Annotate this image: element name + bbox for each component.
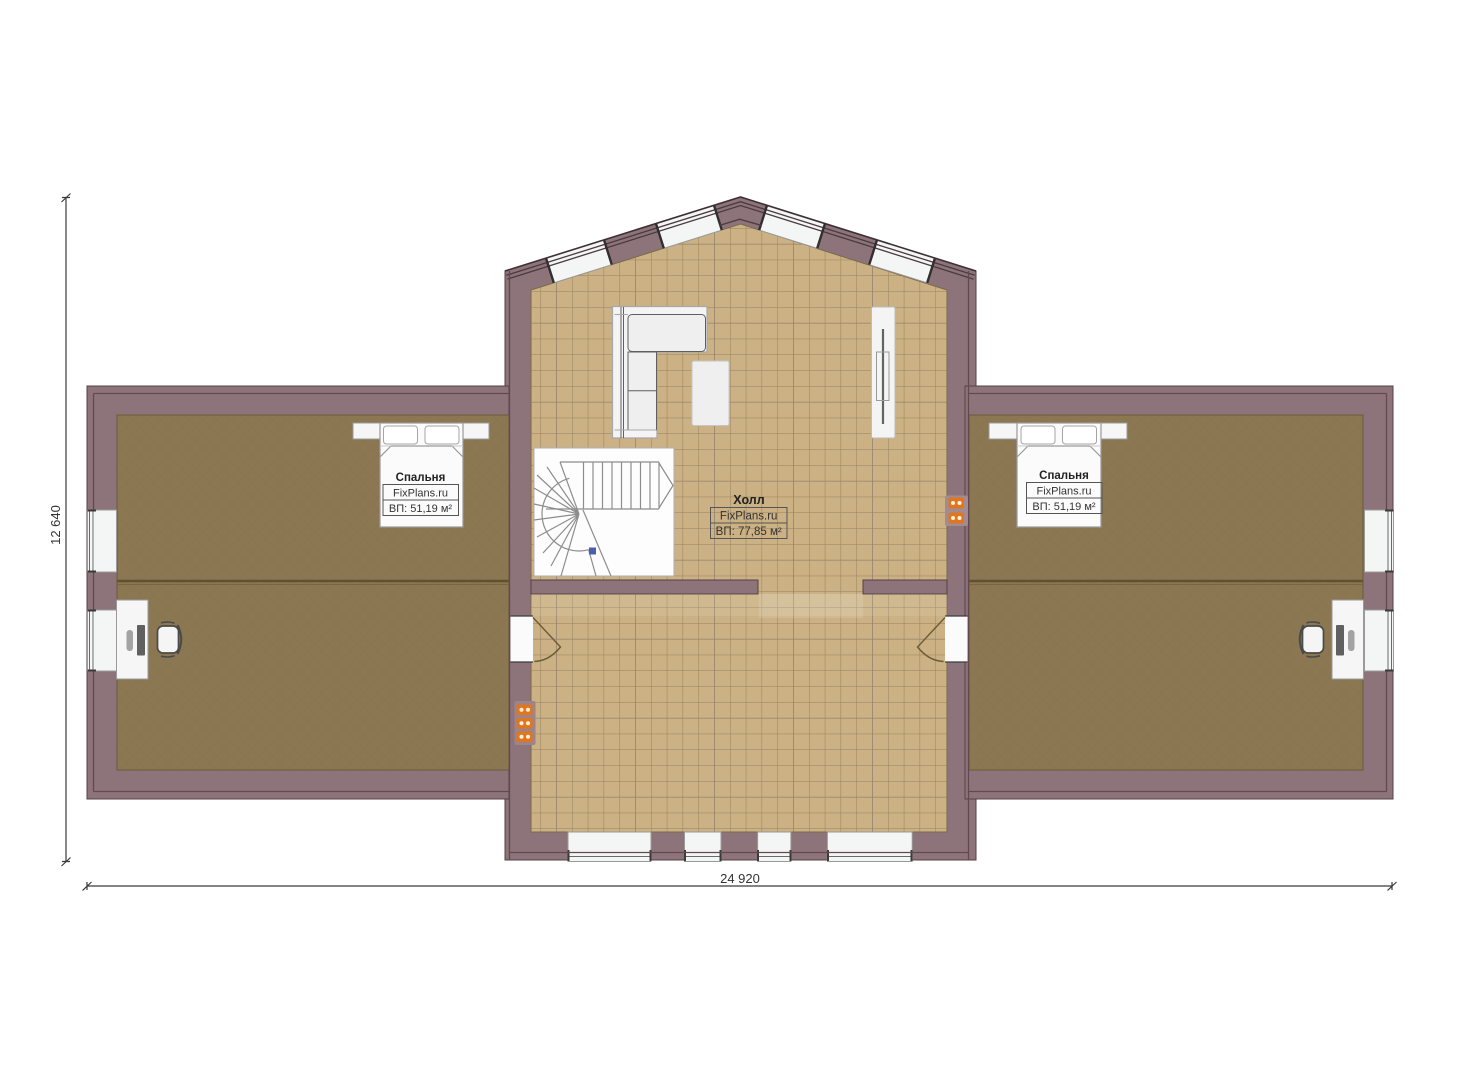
svg-text:ВП: 51,19 м²: ВП: 51,19 м² xyxy=(389,503,453,515)
svg-text:Спальня: Спальня xyxy=(1039,470,1089,482)
svg-text:ВП: 77,85 м²: ВП: 77,85 м² xyxy=(716,526,782,538)
svg-text:FixPlans.ru: FixPlans.ru xyxy=(720,511,778,523)
svg-text:12 640: 12 640 xyxy=(48,505,63,545)
svg-text:24 920: 24 920 xyxy=(720,871,760,886)
svg-text:FixPlans.ru: FixPlans.ru xyxy=(1036,486,1091,498)
svg-text:FixPlans.ru: FixPlans.ru xyxy=(393,488,448,500)
svg-text:Холл: Холл xyxy=(733,493,764,507)
svg-text:ВП: 51,19 м²: ВП: 51,19 м² xyxy=(1032,501,1096,513)
svg-text:Спальня: Спальня xyxy=(396,472,446,484)
